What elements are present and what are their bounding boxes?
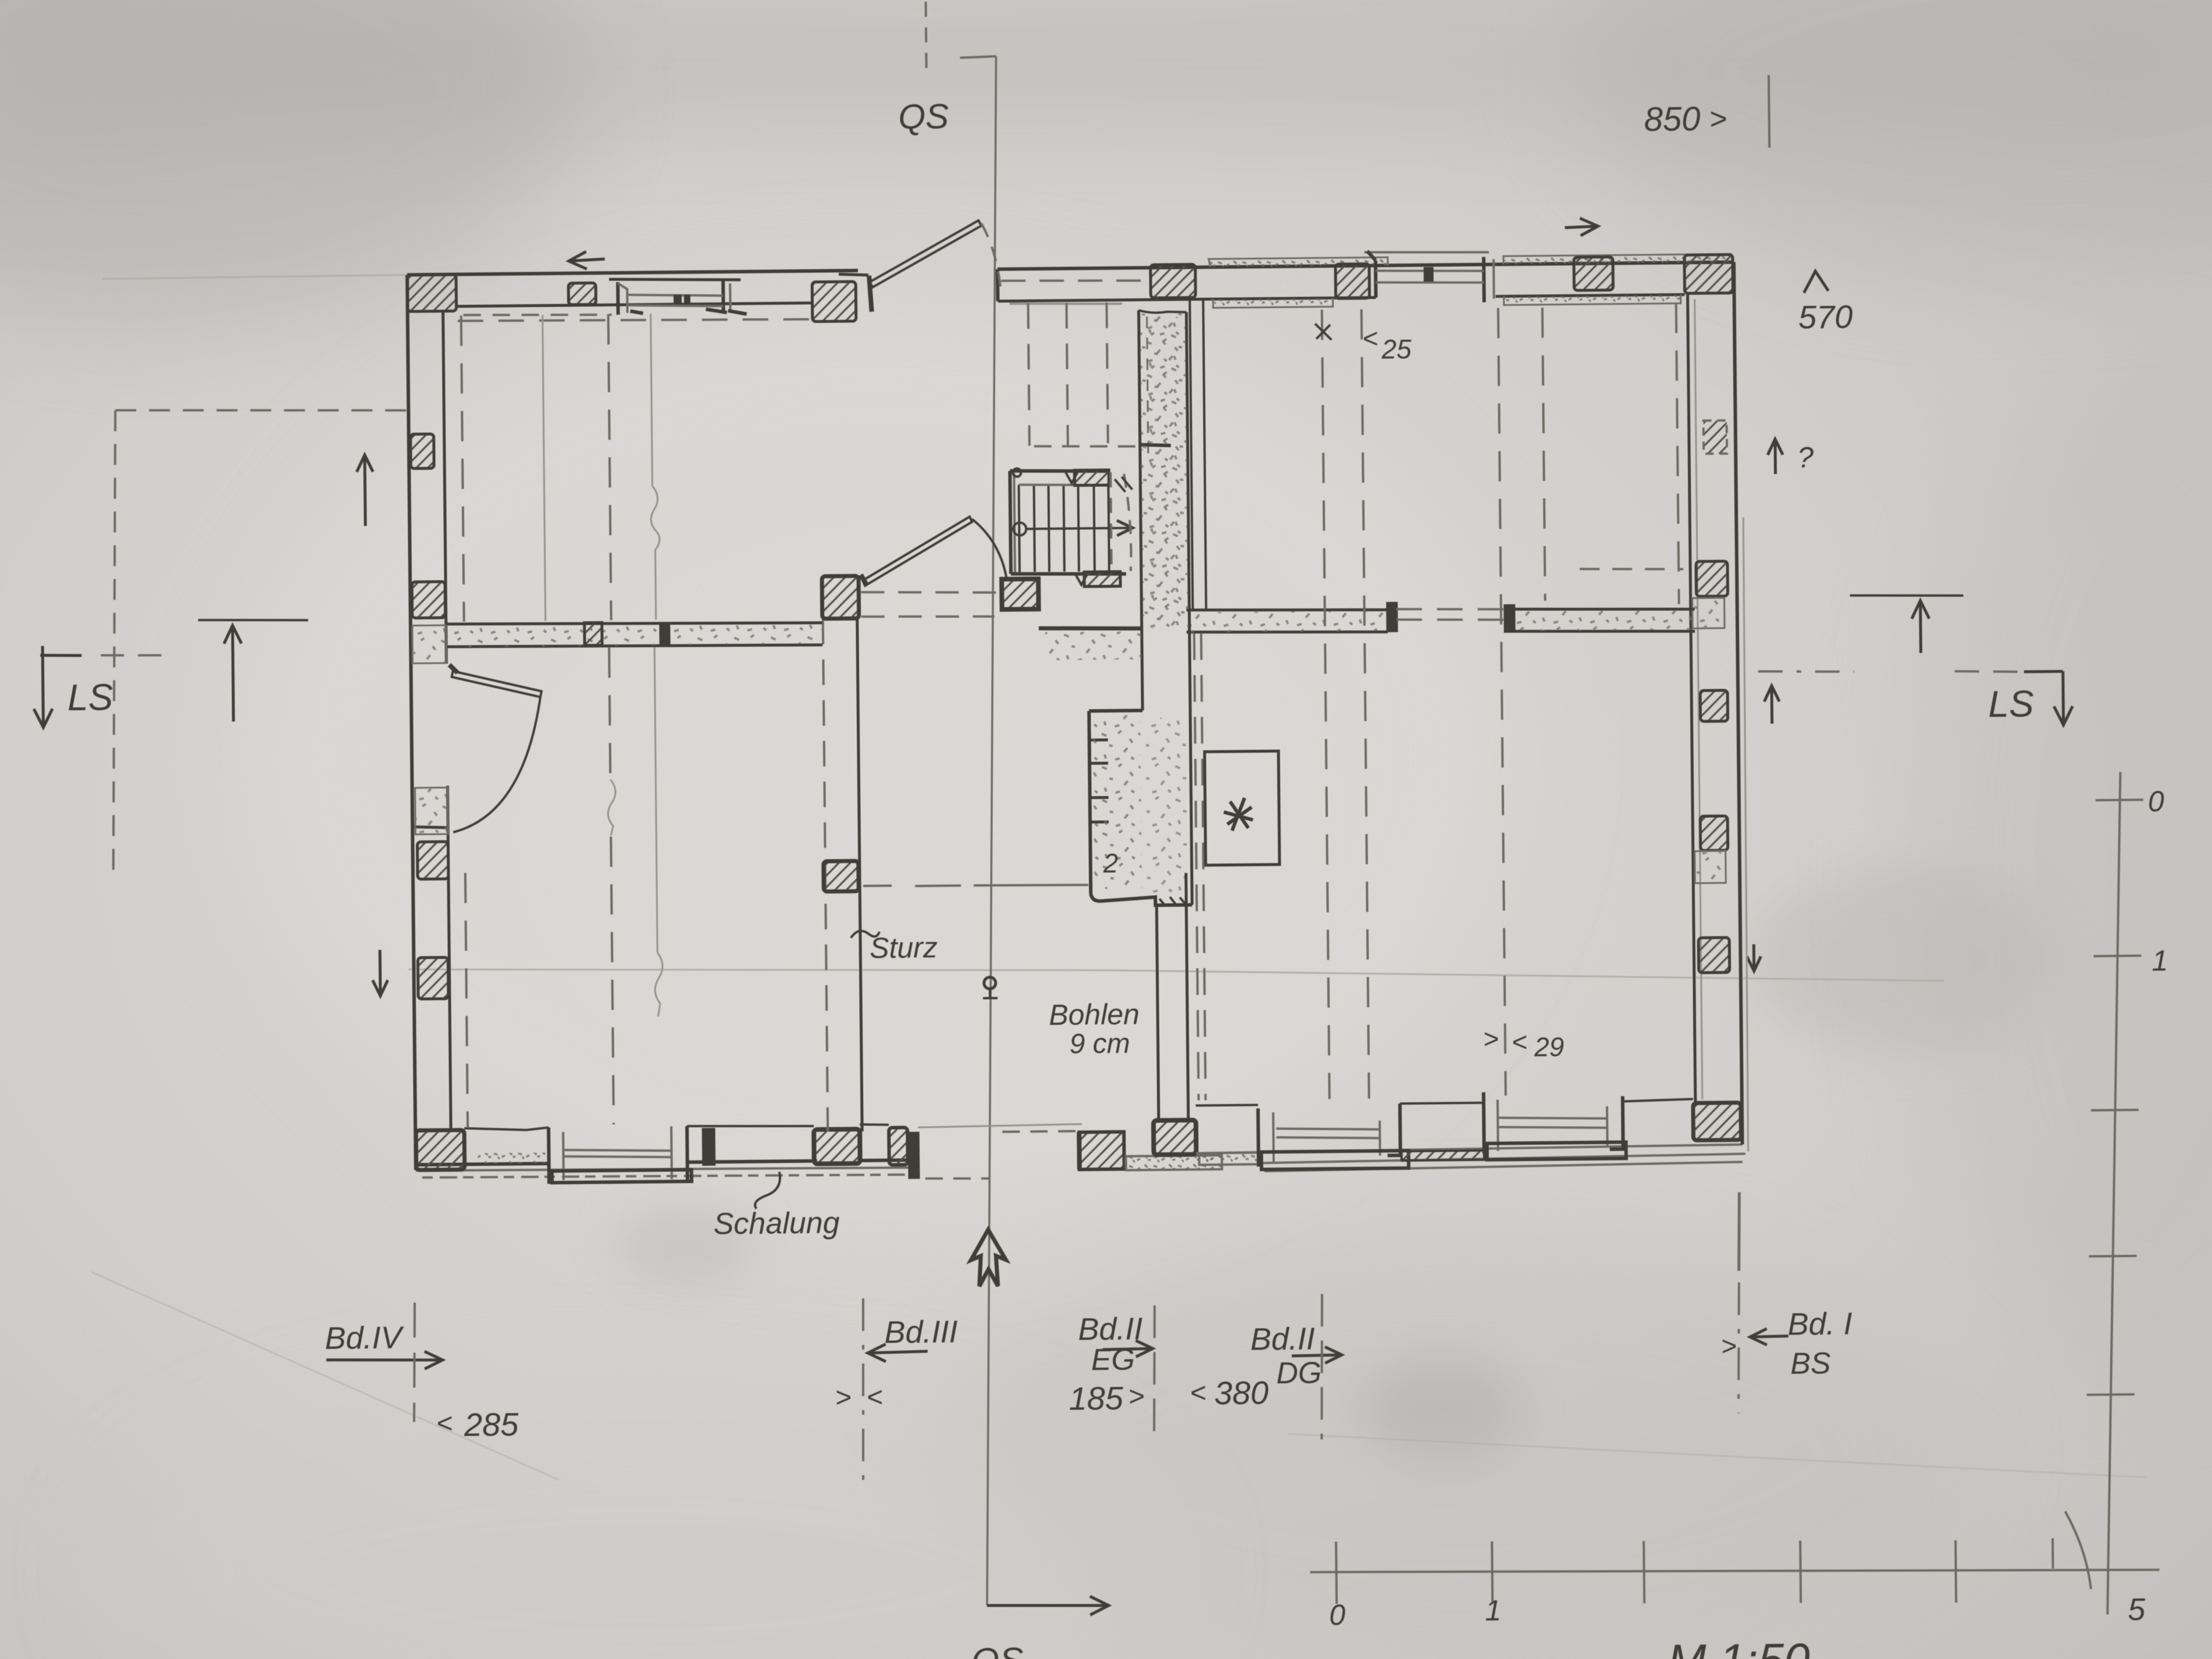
svg-text:>: > — [1483, 1024, 1498, 1054]
svg-text:<: < — [436, 1408, 453, 1439]
svg-text:Schalung: Schalung — [713, 1206, 839, 1241]
svg-text:>: > — [1721, 1331, 1737, 1361]
svg-text:Bd.II: Bd.II — [1250, 1322, 1315, 1357]
svg-text:<: < — [866, 1382, 883, 1413]
svg-text:BS: BS — [1790, 1347, 1831, 1381]
svg-text:Bd.IV: Bd.IV — [325, 1320, 405, 1356]
svg-text:QS: QS — [971, 1640, 1024, 1659]
svg-text:QS: QS — [898, 97, 949, 137]
svg-text:5: 5 — [2128, 1592, 2146, 1627]
svg-text:<: < — [1362, 323, 1378, 353]
svg-text:LS: LS — [67, 676, 113, 718]
svg-text:>: > — [1128, 1381, 1145, 1412]
svg-text:29: 29 — [1534, 1031, 1565, 1062]
svg-text:285: 285 — [464, 1406, 519, 1443]
svg-text:380: 380 — [1214, 1374, 1269, 1411]
svg-text:Bd.II: Bd.II — [1078, 1311, 1143, 1347]
svg-text:9 cm: 9 cm — [1070, 1028, 1131, 1060]
svg-text:M 1:50: M 1:50 — [1668, 1633, 1810, 1659]
svg-text:LS: LS — [1988, 683, 2034, 725]
svg-text:570: 570 — [1798, 298, 1853, 336]
svg-text:Bd.III: Bd.III — [884, 1314, 958, 1350]
svg-text:1: 1 — [2152, 944, 2168, 977]
svg-text:>: > — [835, 1382, 852, 1413]
svg-text:Bohlen: Bohlen — [1049, 998, 1139, 1031]
svg-text:<: < — [1512, 1027, 1527, 1057]
svg-text:Sturz: Sturz — [870, 931, 938, 964]
svg-text:?: ? — [1797, 441, 1814, 474]
svg-text:DG: DG — [1276, 1356, 1322, 1390]
svg-text:185: 185 — [1068, 1380, 1124, 1417]
svg-text:>: > — [1709, 102, 1727, 136]
svg-text:0: 0 — [1329, 1599, 1346, 1631]
svg-text:Bd. I: Bd. I — [1787, 1306, 1853, 1342]
svg-text:1: 1 — [1485, 1594, 1501, 1627]
svg-text:25: 25 — [1381, 334, 1412, 365]
svg-text:0: 0 — [2148, 785, 2165, 818]
svg-text:2: 2 — [1103, 848, 1119, 878]
svg-text:<: < — [1189, 1377, 1206, 1408]
svg-text:850: 850 — [1644, 100, 1700, 138]
